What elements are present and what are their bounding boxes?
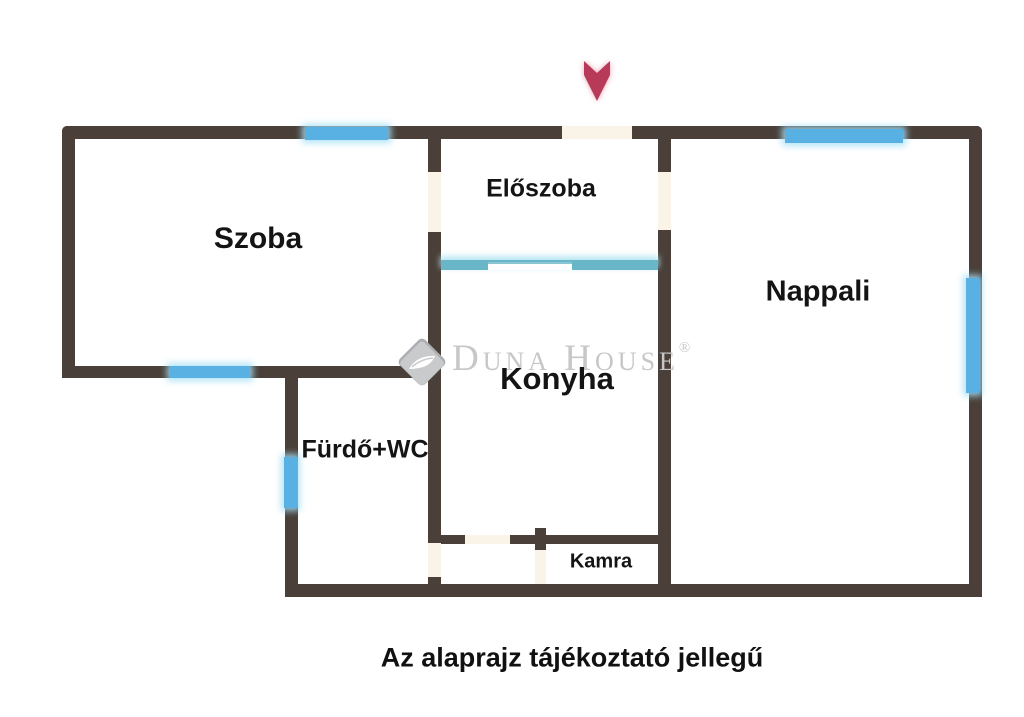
wall-bottom [285, 584, 982, 597]
door-kamra [535, 550, 546, 584]
wall-konyha-bottom-left [441, 535, 465, 544]
wall-kamra-post [535, 528, 546, 550]
room-label-furdo: Fürdő+WC [301, 436, 428, 465]
floor-plan: Duna House® Szoba Előszoba Nappali Konyh… [0, 0, 1024, 717]
watermark-registered-mark: ® [679, 340, 690, 356]
wall-nappali-left-lower [658, 230, 671, 597]
wall-hall-left-upper [428, 139, 441, 172]
room-label-konyha: Konyha [500, 361, 614, 397]
room-label-kamra: Kamra [570, 551, 632, 574]
window-szoba-bottom [170, 366, 250, 378]
window-furdo-left [284, 457, 297, 508]
wall-nappali-left-upper [658, 139, 671, 172]
entrance-arrow-icon [583, 61, 611, 101]
window-szoba-top [305, 127, 388, 140]
room-label-szoba: Szoba [214, 222, 302, 256]
door-konyha-passage [465, 535, 510, 544]
door-entrance [562, 126, 632, 139]
door-furdo [428, 543, 441, 577]
duna-house-logo-icon [395, 335, 449, 389]
wall-left [62, 126, 75, 378]
disclaimer-note: Az alaprajz tájékoztató jellegű [381, 643, 764, 674]
wall-hall-left-nub [428, 577, 441, 585]
room-label-nappali: Nappali [766, 276, 871, 309]
door-szoba-eloszoba [428, 172, 441, 232]
wall-konyha-bottom-right [510, 535, 658, 544]
wall-szoba-bottom [62, 366, 441, 378]
window-nappali-right [966, 278, 979, 393]
window-nappali-top [785, 129, 903, 143]
partition-door-leaf [488, 262, 572, 270]
room-label-eloszoba: Előszoba [486, 175, 596, 204]
door-eloszoba-nappali [658, 172, 671, 230]
